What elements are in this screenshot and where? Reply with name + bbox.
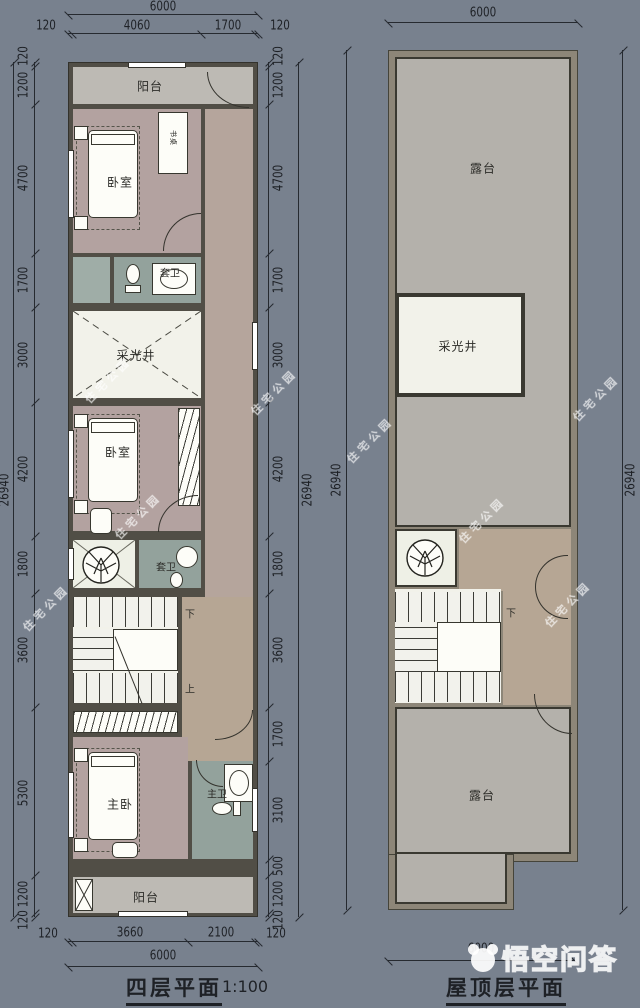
stair-flight bbox=[395, 592, 501, 622]
nightstand bbox=[74, 748, 88, 762]
dim-text: 3660 bbox=[117, 926, 143, 941]
toilet-icon bbox=[170, 572, 183, 588]
dim-text: 26940 bbox=[0, 473, 13, 506]
tree-icon bbox=[80, 544, 122, 586]
sink-icon bbox=[229, 770, 249, 796]
room-label-terrace-bottom: 露台 bbox=[469, 787, 495, 804]
dim-text: 1800 bbox=[17, 551, 32, 577]
room-label-bedroom-top: 卧室 bbox=[107, 174, 133, 191]
dim-text: 4060 bbox=[124, 19, 150, 34]
dim-line bbox=[268, 62, 269, 917]
room-label-terrace-top: 露台 bbox=[470, 160, 496, 177]
wukong-monkey-icon bbox=[468, 944, 498, 972]
dim-text: 26940 bbox=[330, 463, 345, 496]
room-label-desk: 书桌 bbox=[168, 130, 178, 146]
window bbox=[68, 150, 74, 218]
closet-box bbox=[75, 879, 93, 911]
dim-text: 26940 bbox=[301, 473, 316, 506]
window bbox=[252, 322, 258, 370]
room-label-roof-lightwell: 采光井 bbox=[438, 338, 477, 355]
dim-text: 6000 bbox=[150, 949, 176, 964]
stair-label-up: 上 bbox=[185, 681, 195, 696]
dim-line bbox=[13, 62, 14, 917]
window bbox=[118, 911, 188, 917]
room-label-bath-mid: 套卫 bbox=[156, 559, 176, 574]
room-label-balcony-bottom: 阳台 bbox=[133, 889, 159, 906]
nightstand bbox=[74, 414, 88, 428]
dim-line bbox=[388, 22, 578, 23]
room-label-balcony-top: 阳台 bbox=[137, 78, 163, 95]
stair-label-down: 下 bbox=[185, 606, 195, 621]
dim-text: 1200 bbox=[272, 881, 287, 907]
dim-text: 6000 bbox=[150, 0, 176, 15]
closet-top-floor bbox=[73, 257, 110, 303]
corridor-floor bbox=[205, 109, 253, 597]
stair-flight bbox=[395, 622, 437, 672]
nightstand bbox=[74, 126, 88, 140]
nightstand bbox=[74, 838, 88, 852]
toilet-icon bbox=[126, 264, 140, 284]
dim-text: 26940 bbox=[624, 463, 639, 496]
dim-text: 120 bbox=[38, 927, 58, 942]
dim-text: 5300 bbox=[17, 780, 32, 806]
room-label-bedroom-mid: 卧室 bbox=[105, 444, 131, 461]
dim-text: 1200 bbox=[272, 72, 287, 98]
dim-text: 120 bbox=[270, 19, 290, 34]
dim-line bbox=[68, 941, 258, 942]
stair-landing bbox=[113, 629, 178, 671]
pillow bbox=[91, 756, 135, 767]
room-label-bath-top: 套卫 bbox=[160, 265, 180, 280]
dim-text: 3100 bbox=[272, 797, 287, 823]
dim-text: 4200 bbox=[272, 456, 287, 482]
dim-text: 3000 bbox=[272, 342, 287, 368]
stair-flight bbox=[73, 597, 178, 627]
terrace-bottom-floor-l bbox=[395, 852, 507, 904]
stair-landing bbox=[437, 622, 501, 672]
tree-icon bbox=[404, 537, 446, 579]
window bbox=[68, 430, 74, 498]
dim-text: 120 bbox=[17, 46, 32, 66]
dim-text: 4700 bbox=[17, 165, 32, 191]
sink-icon bbox=[176, 546, 198, 568]
pillow bbox=[91, 134, 135, 145]
dim-text: 3000 bbox=[17, 342, 32, 368]
terrace-bottom-floor bbox=[395, 707, 571, 854]
dim-text: 1700 bbox=[215, 19, 241, 34]
toilet-tank bbox=[125, 285, 141, 293]
dim-line bbox=[68, 966, 258, 967]
stair-flight bbox=[395, 672, 501, 702]
nightstand bbox=[74, 216, 88, 230]
dim-text: 1800 bbox=[272, 551, 287, 577]
balcony-bottom-floor bbox=[73, 877, 253, 913]
brand-watermark: 悟空问答 bbox=[468, 938, 618, 977]
dim-text: 120 bbox=[36, 19, 56, 34]
dim-text: 120 bbox=[272, 910, 287, 930]
dim-text: 1200 bbox=[17, 72, 32, 98]
nightstand bbox=[74, 500, 88, 514]
floorplan-sheet: 阳台 卧室 书桌 套卫 采光井 卧室 套卫 下 上 主卧 主卫 阳台 露台 采光… bbox=[0, 0, 640, 1008]
dim-text: 3600 bbox=[17, 637, 32, 663]
dim-text: 1200 bbox=[17, 881, 32, 907]
stool bbox=[112, 842, 138, 858]
stair-flight bbox=[73, 673, 178, 703]
dim-line bbox=[346, 50, 347, 910]
toilet-icon bbox=[212, 802, 232, 815]
window bbox=[68, 548, 74, 580]
stair-flight bbox=[73, 629, 113, 671]
dim-text: 4200 bbox=[17, 456, 32, 482]
wardrobe bbox=[73, 711, 178, 733]
terrace-top-floor bbox=[395, 57, 571, 527]
window bbox=[128, 62, 186, 68]
toilet-tank bbox=[233, 801, 241, 816]
dim-text: 3600 bbox=[272, 637, 287, 663]
dim-text: 2100 bbox=[208, 926, 234, 941]
right-plan-title: 屋顶层平面 bbox=[446, 972, 566, 1006]
dim-text: 6000 bbox=[470, 6, 496, 21]
stair-label-down-roof: 下 bbox=[506, 605, 516, 620]
watermark: 住宅公园 bbox=[19, 581, 73, 635]
wardrobe bbox=[178, 408, 200, 506]
room-label-master: 主卧 bbox=[107, 796, 133, 813]
room-label-master-bath: 主卫 bbox=[207, 786, 227, 801]
stool bbox=[90, 508, 112, 534]
dim-text: 500 bbox=[272, 856, 287, 876]
pillow bbox=[91, 422, 135, 433]
brand-watermark-text: 悟空问答 bbox=[502, 938, 618, 977]
dim-text: 1700 bbox=[272, 267, 287, 293]
dim-text: 1700 bbox=[17, 267, 32, 293]
dim-line bbox=[34, 62, 35, 917]
left-plan-title: 四层平面 bbox=[126, 972, 222, 1006]
dim-text: 4700 bbox=[272, 165, 287, 191]
dim-line bbox=[298, 62, 299, 917]
dim-text: 120 bbox=[272, 46, 287, 66]
left-plan-scale: 1:100 bbox=[222, 977, 268, 996]
dim-text: 1700 bbox=[272, 721, 287, 747]
window bbox=[68, 772, 74, 838]
